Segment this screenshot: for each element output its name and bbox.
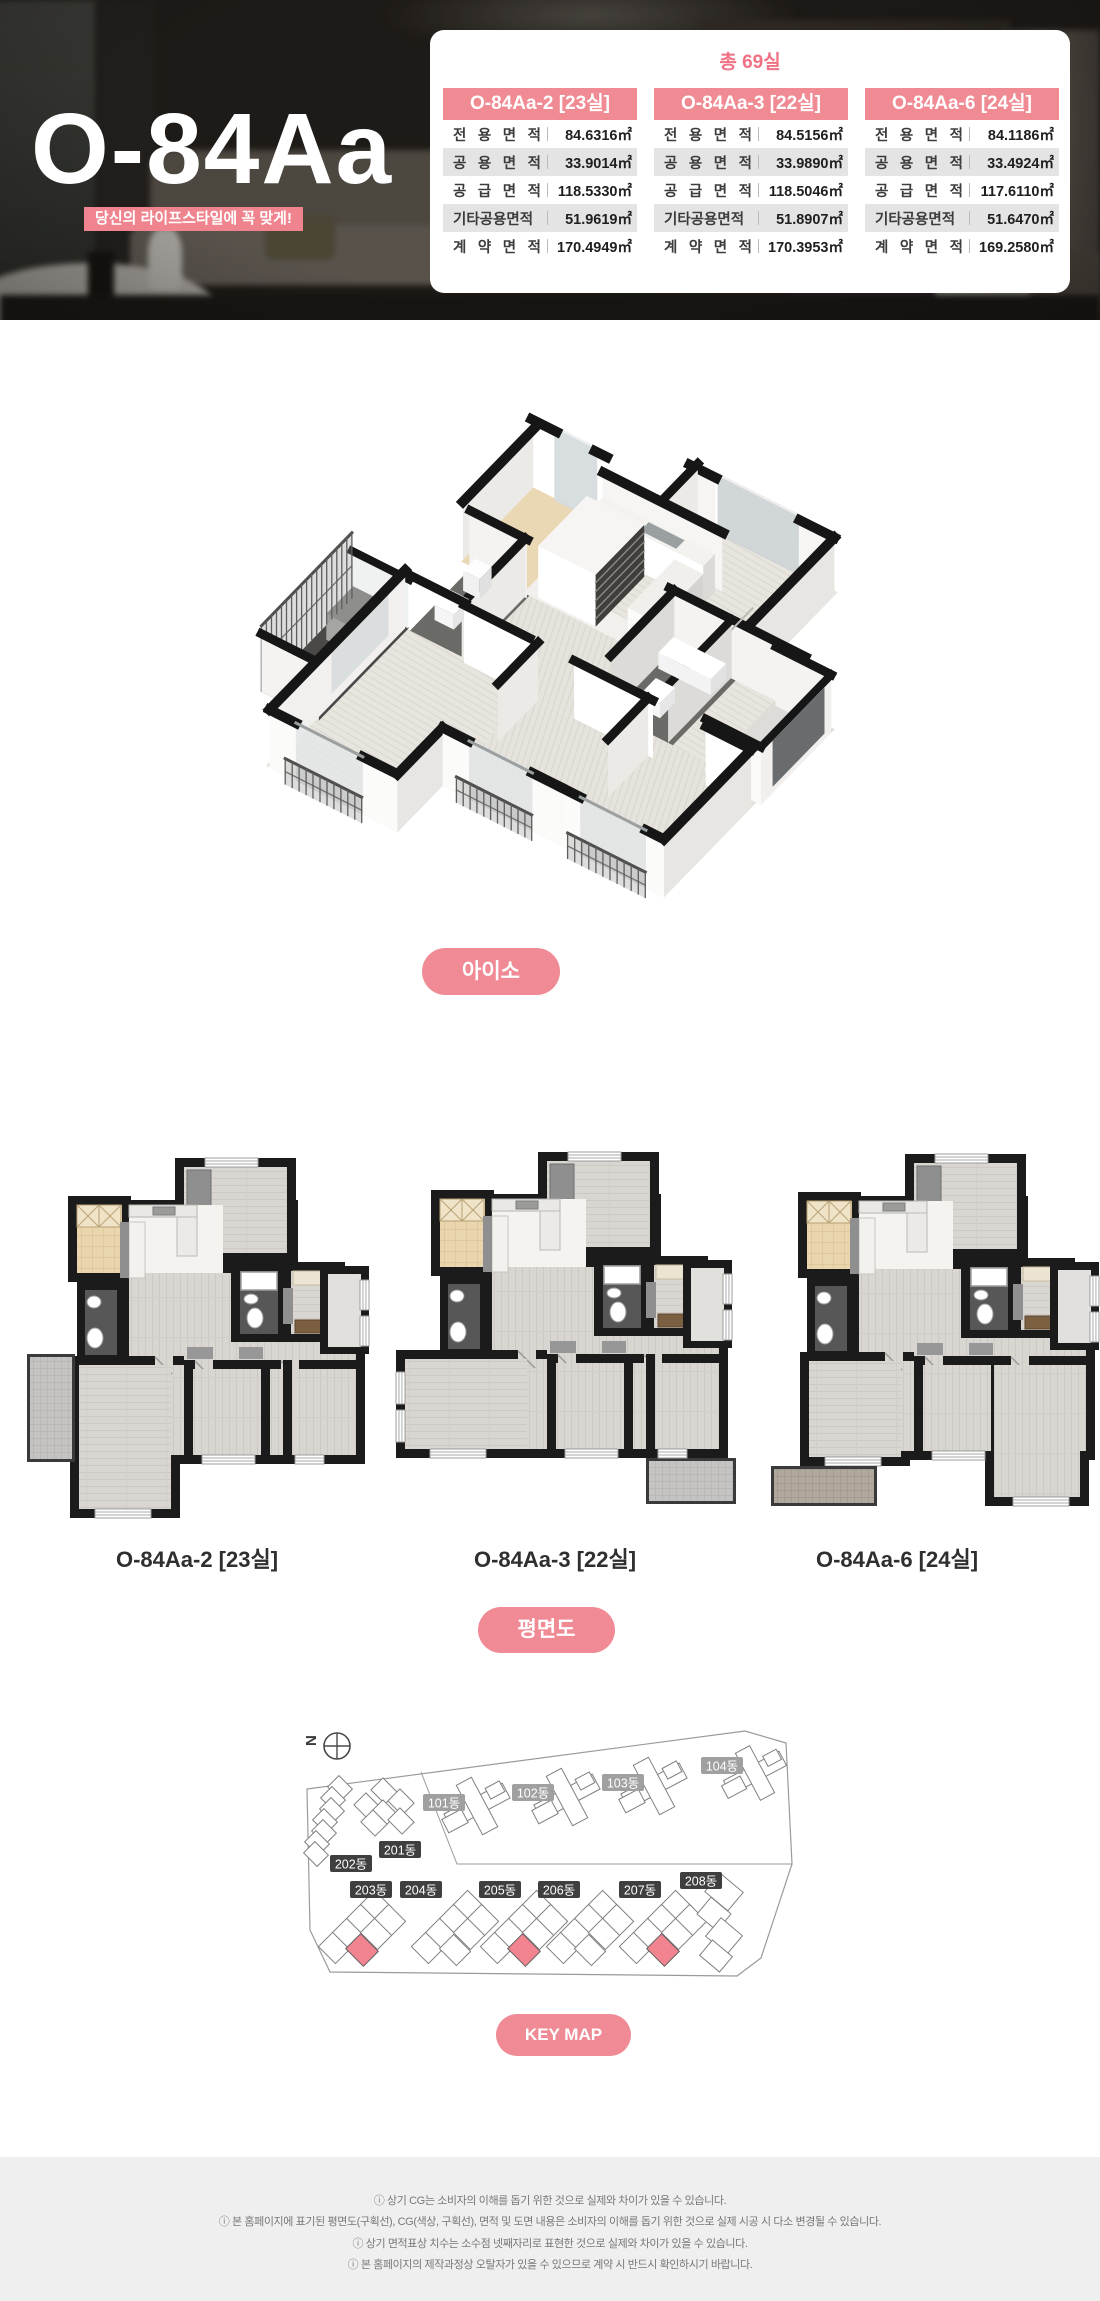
svg-text:206동: 206동	[543, 1884, 575, 1898]
svg-text:102동: 102동	[517, 1787, 549, 1801]
svg-text:204동: 204동	[405, 1884, 437, 1898]
svg-text:203동: 203동	[355, 1884, 387, 1898]
svg-text:201동: 201동	[384, 1844, 416, 1858]
svg-text:208동: 208동	[685, 1875, 717, 1889]
svg-text:N: N	[303, 1735, 320, 1746]
svg-text:103동: 103동	[607, 1777, 639, 1791]
svg-text:104동: 104동	[706, 1760, 738, 1774]
svg-text:207동: 207동	[624, 1884, 656, 1898]
svg-text:202동: 202동	[335, 1858, 367, 1872]
svg-text:205동: 205동	[484, 1884, 516, 1898]
svg-text:101동: 101동	[428, 1797, 460, 1811]
